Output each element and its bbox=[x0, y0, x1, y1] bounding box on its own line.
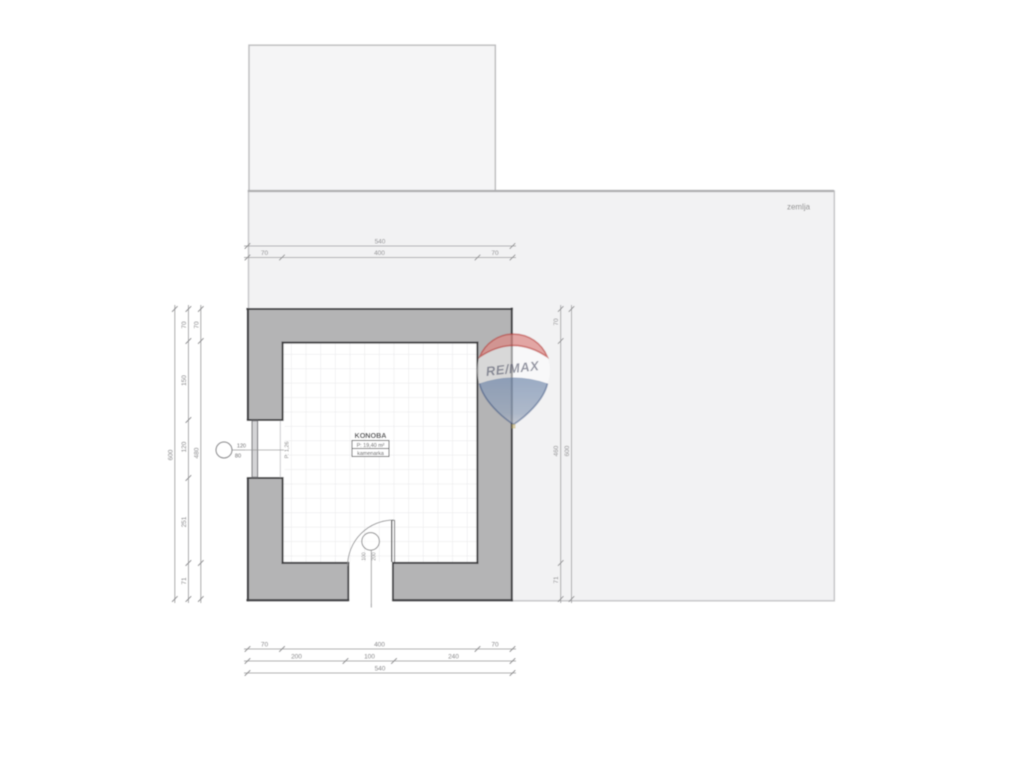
svg-text:240: 240 bbox=[448, 654, 459, 661]
svg-text:71: 71 bbox=[553, 576, 560, 584]
svg-text:70: 70 bbox=[181, 321, 188, 329]
svg-text:70: 70 bbox=[193, 321, 200, 329]
svg-text:540: 540 bbox=[375, 666, 386, 673]
svg-text:P: 1,26: P: 1,26 bbox=[285, 441, 291, 458]
svg-text:600: 600 bbox=[564, 445, 571, 456]
svg-text:kamenarka: kamenarka bbox=[357, 451, 384, 457]
svg-text:540: 540 bbox=[375, 239, 386, 246]
svg-text:70: 70 bbox=[491, 250, 499, 257]
svg-text:480: 480 bbox=[193, 447, 200, 458]
svg-text:120: 120 bbox=[237, 444, 246, 450]
svg-text:80: 80 bbox=[235, 454, 241, 460]
svg-text:600: 600 bbox=[167, 449, 174, 460]
svg-text:70: 70 bbox=[491, 642, 499, 649]
svg-text:70: 70 bbox=[261, 250, 269, 257]
svg-text:71: 71 bbox=[181, 577, 188, 585]
svg-text:100: 100 bbox=[364, 654, 375, 661]
svg-text:zemlja: zemlja bbox=[787, 203, 811, 212]
svg-text:KONOBA: KONOBA bbox=[355, 431, 387, 440]
svg-text:P: 19,40 m²: P: 19,40 m² bbox=[357, 443, 385, 449]
svg-text:460: 460 bbox=[553, 445, 560, 456]
svg-text:100: 100 bbox=[362, 552, 368, 561]
svg-text:70: 70 bbox=[261, 642, 269, 649]
svg-text:400: 400 bbox=[374, 250, 385, 257]
svg-text:251: 251 bbox=[181, 516, 188, 527]
svg-text:70: 70 bbox=[553, 318, 560, 326]
svg-text:120: 120 bbox=[181, 441, 188, 452]
svg-text:400: 400 bbox=[374, 642, 385, 649]
svg-text:150: 150 bbox=[181, 375, 188, 386]
svg-text:200: 200 bbox=[291, 654, 302, 661]
svg-text:200: 200 bbox=[372, 552, 378, 561]
